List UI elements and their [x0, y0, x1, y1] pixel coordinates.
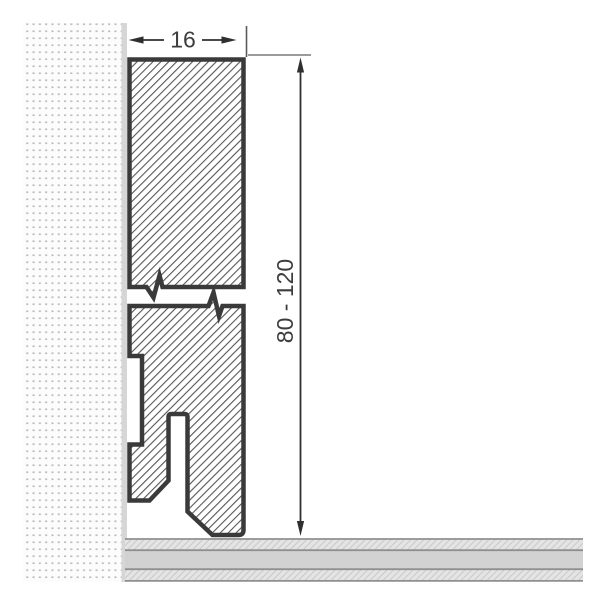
technical-drawing-canvas: 16 80 - 120 [0, 0, 604, 604]
profile-lower-section [130, 293, 244, 536]
skirting-profile [130, 60, 244, 536]
width-dimension: 16 [129, 26, 247, 57]
profile-upper-section [130, 60, 244, 298]
floor-bottom-layer [125, 570, 583, 580]
skirting-profile-diagram: 16 80 - 120 [0, 0, 604, 604]
width-dim-right-arrowhead [222, 36, 237, 43]
wall [23, 23, 127, 582]
floor-core-layer [125, 551, 583, 568]
height-dimension: 80 - 120 [248, 55, 311, 536]
wall-surface-strip [122, 23, 128, 582]
height-dimension-label: 80 - 120 [272, 259, 298, 343]
height-dim-top-arrowhead [297, 58, 304, 73]
floor-top-screed-layer [125, 540, 583, 550]
height-dim-bottom-arrowhead [297, 521, 304, 536]
floor [125, 539, 583, 581]
width-dimension-label: 16 [170, 27, 196, 53]
wall-plaster-stipple [23, 23, 122, 582]
width-dim-left-arrowhead [129, 36, 144, 43]
